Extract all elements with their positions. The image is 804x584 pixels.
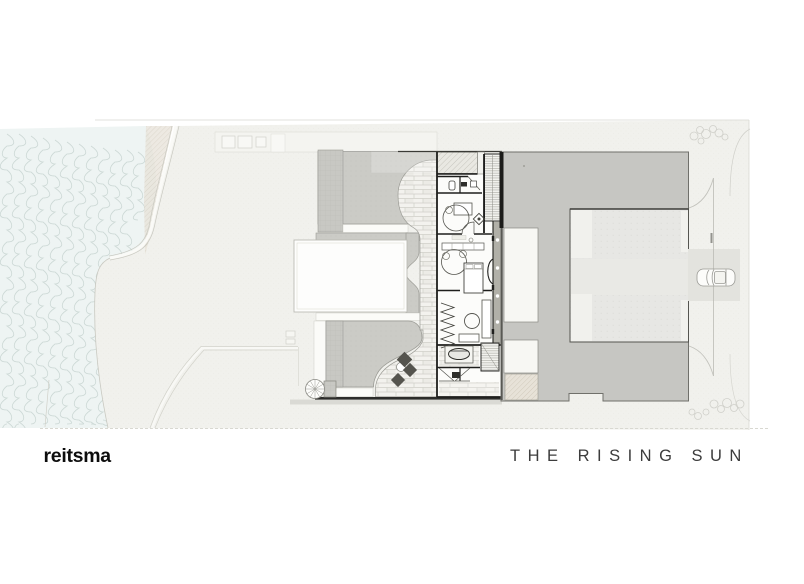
- svg-text:reitsma: reitsma: [44, 445, 112, 467]
- svg-text:THE RISING SUN: THE RISING SUN: [510, 447, 749, 465]
